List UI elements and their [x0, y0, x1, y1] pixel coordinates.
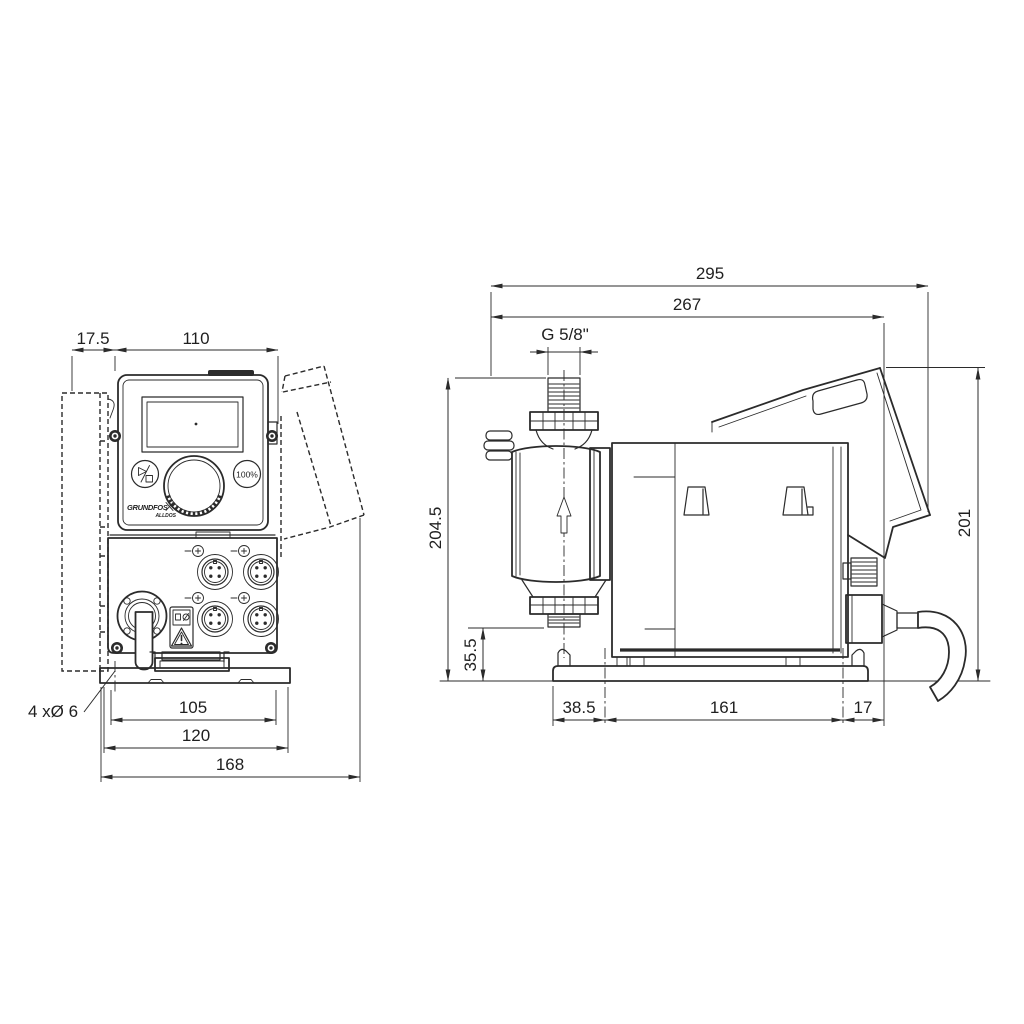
control-knob — [164, 456, 224, 516]
dim-overall-depth: 295 — [696, 264, 724, 283]
dim-mount-holes: 161 — [710, 698, 738, 717]
drain-tube — [136, 612, 153, 670]
logo-text: GRUNDFOS — [127, 503, 168, 512]
dosing-head — [484, 378, 610, 627]
hole-note: 4 xØ 6 — [28, 702, 78, 721]
dim-mount-offset: 17.5 — [76, 329, 109, 348]
dim-base-to-center: 38.5 — [562, 698, 595, 717]
control-panel: 100% GRUNDFOS ALLDOS — [118, 370, 277, 530]
dim-cover-height: 201 — [955, 509, 974, 537]
side-view — [440, 368, 990, 726]
percent-button-label: 100% — [236, 470, 258, 480]
warning-label — [170, 607, 193, 648]
grundfos-logo: GRUNDFOS ALLDOS — [127, 503, 177, 520]
lcd-display — [142, 397, 243, 452]
top-clip — [208, 370, 254, 376]
logo-subtext: ALLDOS — [154, 513, 176, 519]
start-stop-button — [132, 461, 159, 488]
clip-tab — [684, 487, 709, 515]
priming-knob — [484, 431, 514, 460]
percent-button: 100% — [234, 461, 261, 488]
m12-connectors — [185, 546, 279, 637]
play-stop-icon — [139, 466, 153, 483]
front-view: 100% GRUNDFOS ALLDOS — [62, 366, 364, 692]
m12-connector — [198, 555, 233, 590]
dim-hole-span: 105 — [179, 698, 207, 717]
technical-drawing-page: 100% GRUNDFOS ALLDOS — [0, 0, 1024, 1024]
base-plate-side — [553, 649, 868, 681]
clip-tab — [783, 487, 813, 515]
flow-direction-arrow-icon — [557, 497, 571, 533]
m12-connector — [198, 602, 233, 637]
dim-overall-width: 168 — [216, 755, 244, 774]
dim-depth-to-cover: 267 — [673, 295, 701, 314]
dim-width: 110 — [182, 329, 209, 348]
warning-triangle-icon — [172, 628, 192, 646]
dim-overall-height: 204.5 — [426, 507, 445, 550]
m12-connector — [244, 602, 279, 637]
pump-body-side — [612, 443, 848, 657]
power-cable — [918, 611, 966, 701]
hood-side — [712, 368, 930, 558]
cable-gland — [846, 595, 882, 643]
dim-rear-offset: 17 — [854, 698, 873, 717]
base-plate-front — [100, 661, 290, 692]
dim-port-height: 35.5 — [461, 638, 480, 671]
rear-connections — [843, 558, 966, 701]
hood-open-dashed — [281, 366, 364, 560]
back-plate-dashed — [62, 393, 114, 671]
m12-connector — [244, 555, 279, 590]
dosing-pump-dimensional-drawing: 100% GRUNDFOS ALLDOS — [0, 0, 1024, 1024]
thread-label: G 5/8" — [541, 325, 589, 344]
dim-plate-width: 120 — [182, 726, 210, 745]
